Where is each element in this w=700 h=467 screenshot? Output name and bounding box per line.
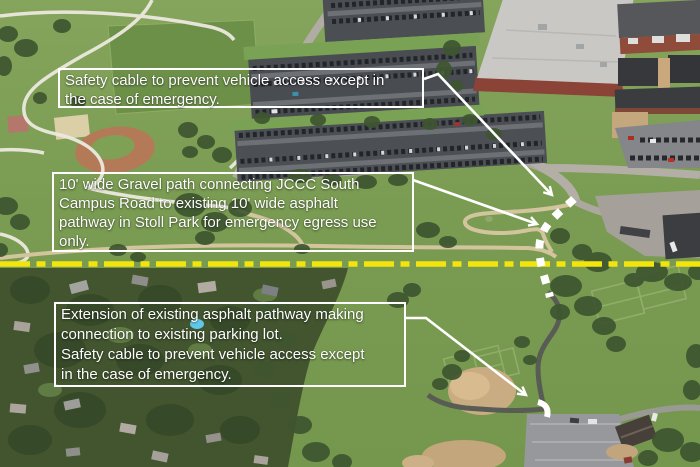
note-safety-cable-top: Safety cable to prevent vehicle access e…: [58, 68, 424, 108]
aerial-map: Safety cable to prevent vehicle access e…: [0, 0, 700, 467]
leader-arrow-top: [424, 74, 552, 195]
leader-arrow-middle: [413, 180, 537, 224]
parking-entrance-mark: [538, 402, 548, 417]
note-pathway-extension: Extension of existing asphalt pathway ma…: [54, 302, 406, 387]
proposed-path-dashes: [539, 199, 574, 297]
leader-arrow-bottom: [404, 318, 526, 395]
note-gravel-path: 10' wide Gravel path connecting JCCC Sou…: [52, 172, 414, 252]
